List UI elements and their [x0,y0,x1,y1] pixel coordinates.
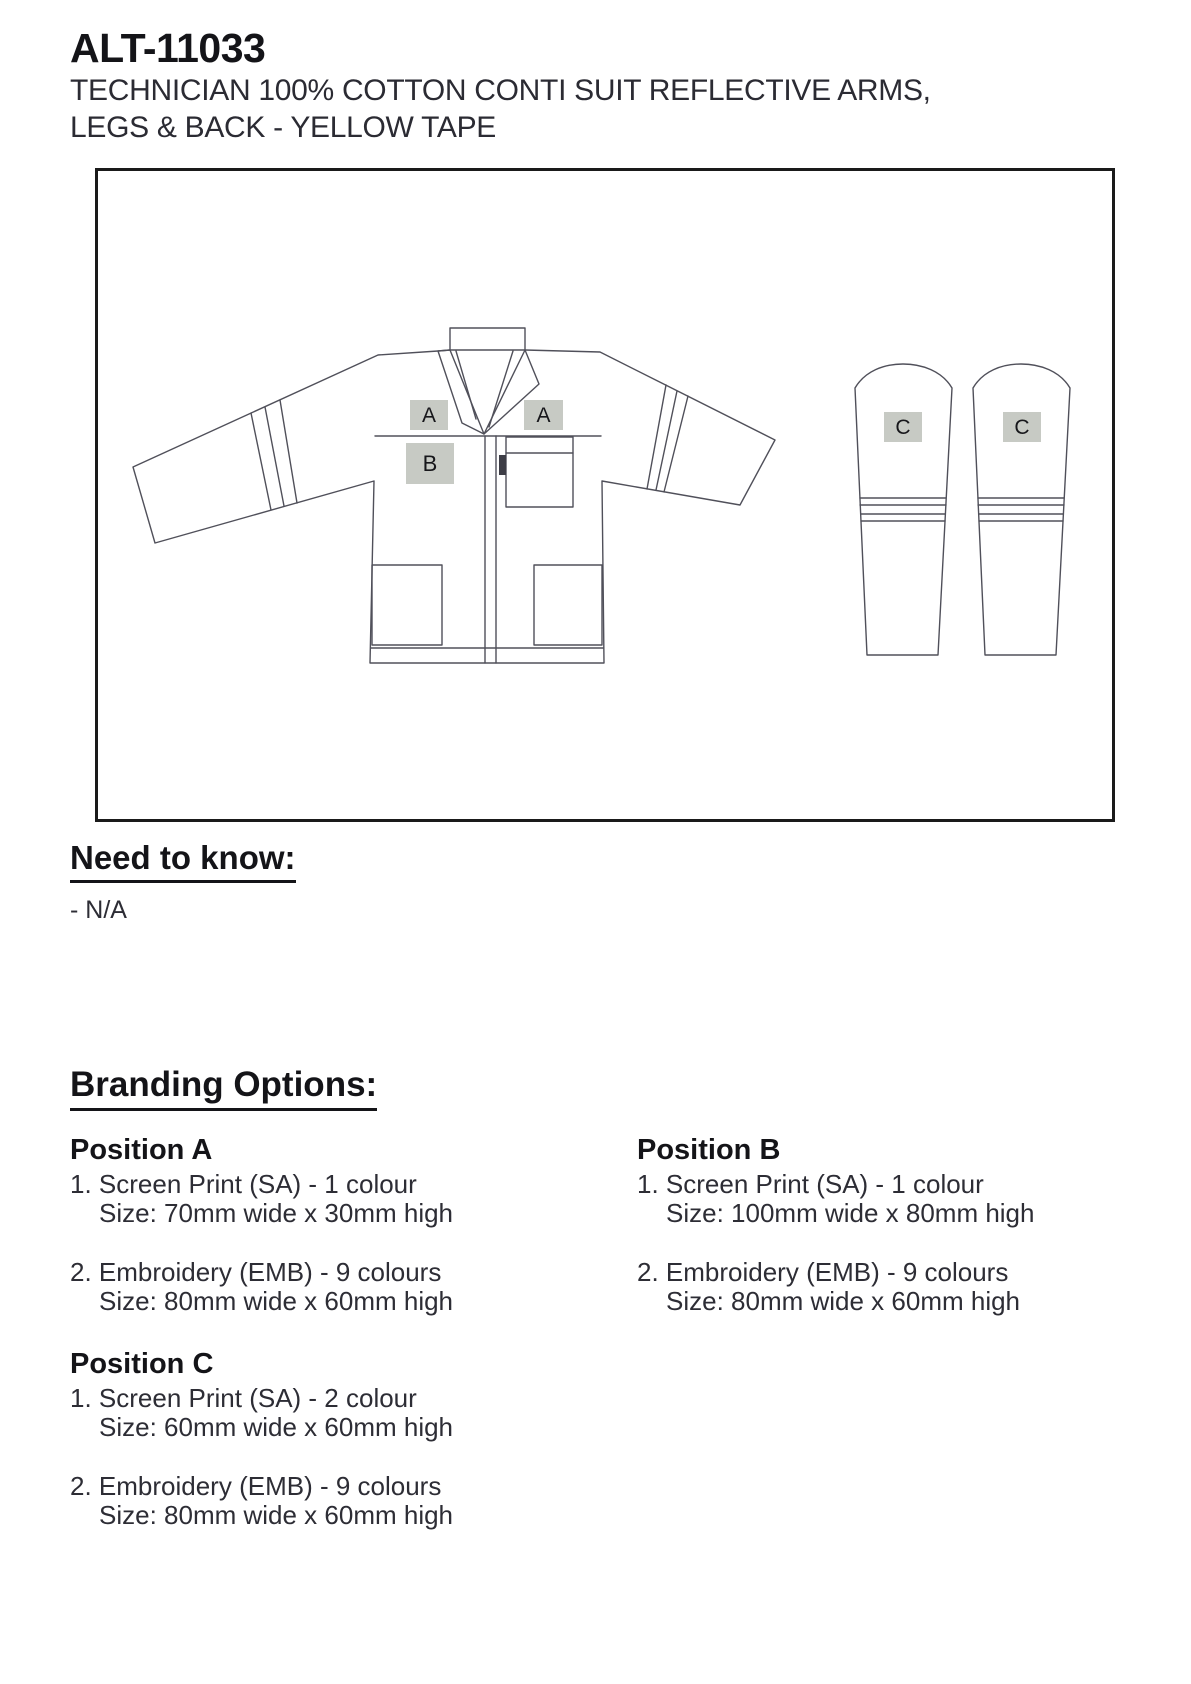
leg-left-outline [855,364,952,655]
branding-position-marker-c-right: C [1003,412,1041,442]
branding-position-marker-a-right: A [524,400,563,430]
position-c-option-1: 1. Screen Print (SA) - 2 colour Size: 60… [70,1384,590,1442]
jacket-drawing [133,328,775,663]
option-label: 2. Embroidery (EMB) - 9 colours [70,1472,590,1501]
option-size: Size: 80mm wide x 60mm high [637,1287,1157,1316]
option-size: Size: 100mm wide x 80mm high [637,1199,1157,1228]
position-c-option-2: 2. Embroidery (EMB) - 9 colours Size: 80… [70,1472,590,1530]
position-b-option-2: 2. Embroidery (EMB) - 9 colours Size: 80… [637,1258,1157,1316]
chest-pocket [506,437,573,507]
position-c-name: Position C [70,1348,590,1380]
option-label: 1. Screen Print (SA) - 1 colour [70,1170,590,1199]
option-label: 1. Screen Print (SA) - 1 colour [637,1170,1157,1199]
position-b-name: Position B [637,1134,1157,1166]
position-c-block: Position C 1. Screen Print (SA) - 2 colo… [70,1348,590,1530]
need-to-know-section: Need to know: - N/A [70,838,296,925]
garment-diagram [98,171,1112,819]
lapel-right-fold [489,351,513,427]
header: ALT-11033 TECHNICIAN 100% COTTON CONTI S… [70,24,931,146]
branding-options-heading: Branding Options: [70,1064,377,1111]
option-label: 2. Embroidery (EMB) - 9 colours [637,1258,1157,1287]
reflective-tape-left-leg [860,498,946,521]
position-a-option-1: 1. Screen Print (SA) - 1 colour Size: 70… [70,1170,590,1228]
product-subtitle-line2: LEGS & BACK - YELLOW TAPE [70,109,931,146]
diagram-frame: A A B C C [95,168,1115,822]
product-code: ALT-11033 [70,24,931,72]
option-size: Size: 80mm wide x 60mm high [70,1287,590,1316]
position-b-block: Position B 1. Screen Print (SA) - 1 colo… [637,1134,1157,1316]
zip-placket [485,436,496,663]
branding-options-section: Branding Options: [70,1064,377,1111]
lower-pocket-right [534,565,602,645]
spec-sheet-page: { "header": { "product_code": "ALT-11033… [0,0,1191,1684]
need-to-know-note: - N/A [70,895,296,925]
leg-right-outline [973,364,1070,655]
position-a-name: Position A [70,1134,590,1166]
position-b-option-1: 1. Screen Print (SA) - 1 colour Size: 10… [637,1170,1157,1228]
product-subtitle-line1: TECHNICIAN 100% COTTON CONTI SUIT REFLEC… [70,72,931,109]
legs-drawing [855,364,1070,655]
need-to-know-heading: Need to know: [70,838,296,883]
branding-position-marker-c-left: C [884,412,922,442]
collar [450,328,525,350]
zip-pull [499,455,506,475]
position-a-block: Position A 1. Screen Print (SA) - 1 colo… [70,1134,590,1316]
lapel-left-fold [456,351,476,419]
option-size: Size: 80mm wide x 60mm high [70,1501,590,1530]
option-label: 1. Screen Print (SA) - 2 colour [70,1384,590,1413]
option-label: 2. Embroidery (EMB) - 9 colours [70,1258,590,1287]
reflective-tape-right-sleeve [647,385,688,492]
branding-position-marker-a-left: A [410,400,448,430]
reflective-tape-left-sleeve [251,400,297,510]
reflective-tape-right-leg [978,498,1064,521]
position-a-option-2: 2. Embroidery (EMB) - 9 colours Size: 80… [70,1258,590,1316]
lower-pocket-left [372,565,442,645]
option-size: Size: 70mm wide x 30mm high [70,1199,590,1228]
option-size: Size: 60mm wide x 60mm high [70,1413,590,1442]
branding-position-marker-b: B [406,443,454,484]
